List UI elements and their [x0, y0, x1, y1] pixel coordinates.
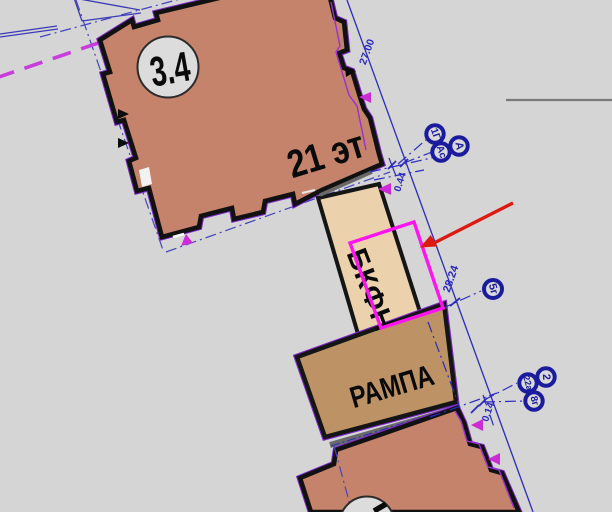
svg-text:2: 2: [540, 373, 552, 380]
